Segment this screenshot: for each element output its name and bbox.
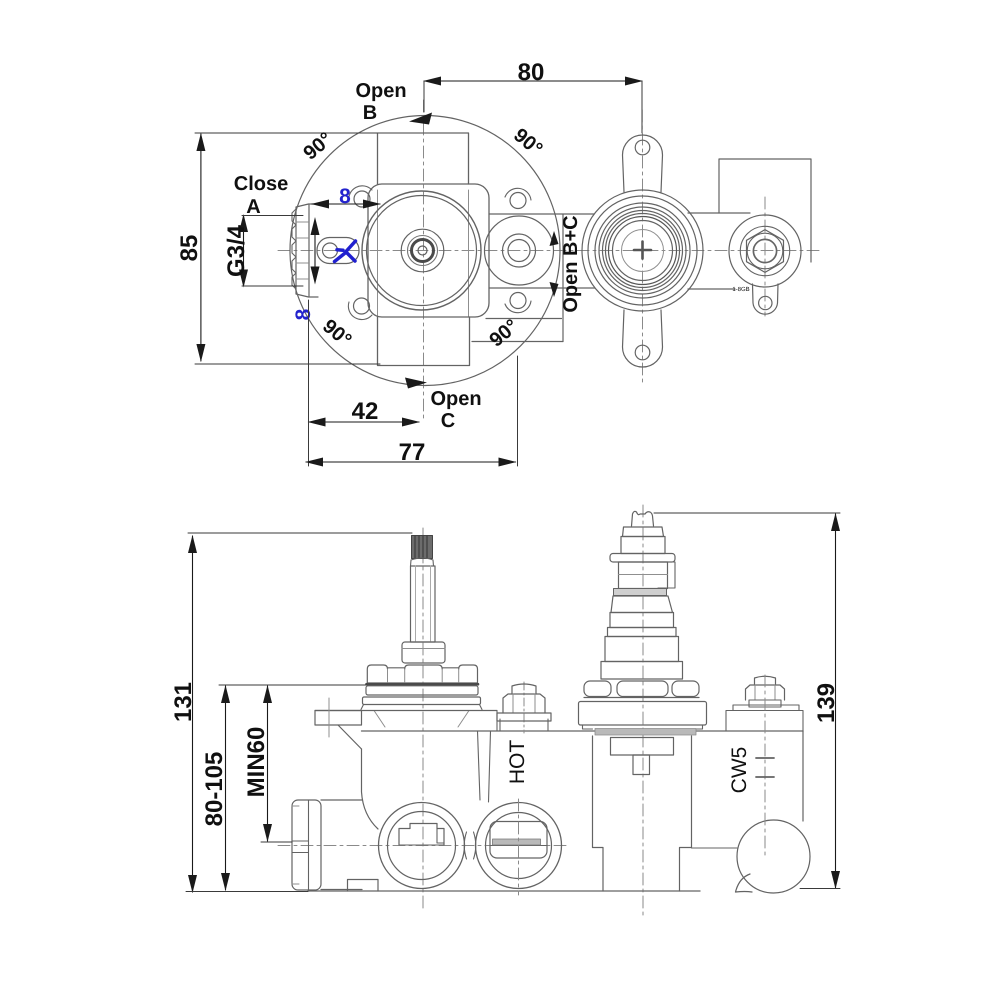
svg-text:CW5: CW5 [728,747,751,794]
svg-text:77: 77 [399,439,426,466]
svg-text:MIN60: MIN60 [243,727,270,798]
svg-text:8: 8 [339,185,351,208]
svg-text:1-8GB: 1-8GB [732,286,749,293]
svg-text:80-105: 80-105 [201,752,228,827]
svg-text:Open: Open [430,388,481,410]
svg-text:A: A [246,196,260,218]
svg-text:HOT: HOT [506,740,529,785]
svg-text:B: B [363,102,377,124]
svg-text:Open B+C: Open B+C [560,215,582,312]
svg-text:85: 85 [176,235,203,262]
svg-text:Open: Open [355,80,406,102]
svg-text:8: 8 [292,308,315,320]
svg-text:131: 131 [170,682,197,722]
svg-text:80: 80 [518,59,545,86]
svg-text:42: 42 [352,398,379,425]
svg-text:Close: Close [234,173,288,195]
svg-text:C: C [441,410,455,432]
svg-text:G3/4: G3/4 [223,224,250,277]
svg-text:139: 139 [813,683,840,723]
